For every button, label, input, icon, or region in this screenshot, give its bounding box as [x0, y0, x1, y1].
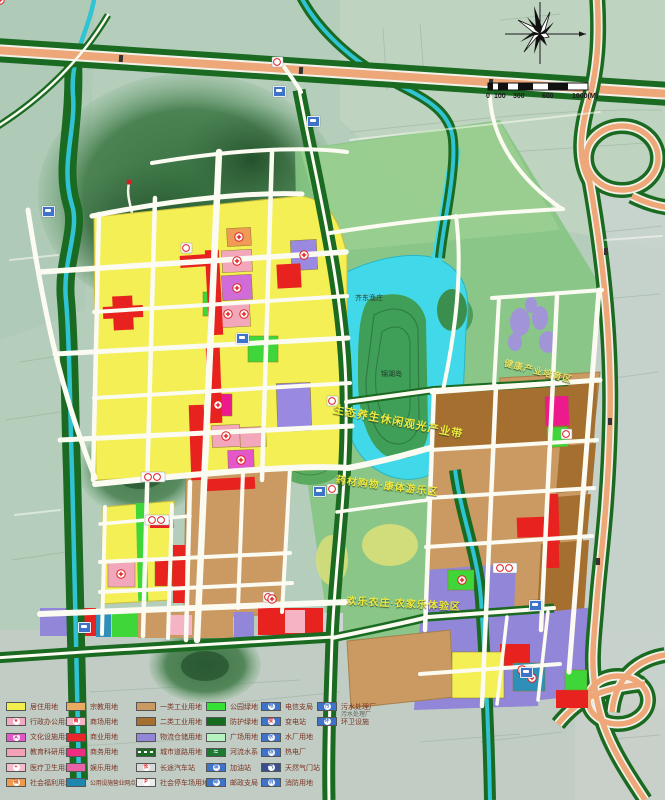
map-canvas: 齐东渔庄锦湖岛生态养生休闲观光产业带药材购物·康体游乐区欢乐农庄·农家乐体验区健…	[0, 0, 665, 800]
scale-label: 0	[486, 93, 490, 100]
poi-icon	[273, 86, 286, 97]
poi-icon	[78, 622, 91, 633]
poi-icon	[313, 486, 326, 497]
poi-icon	[307, 116, 320, 127]
scale-label: 300	[513, 93, 525, 100]
scale-label: 1000(M)	[572, 93, 598, 100]
scale-bar	[488, 83, 588, 90]
scale-label: 600	[542, 93, 554, 100]
planning-map	[0, 0, 665, 800]
poi-icon	[236, 333, 249, 344]
poi-icon	[520, 667, 533, 678]
poi-icon	[42, 206, 55, 217]
scale-label: 100	[494, 93, 506, 100]
poi-icon	[529, 600, 542, 611]
